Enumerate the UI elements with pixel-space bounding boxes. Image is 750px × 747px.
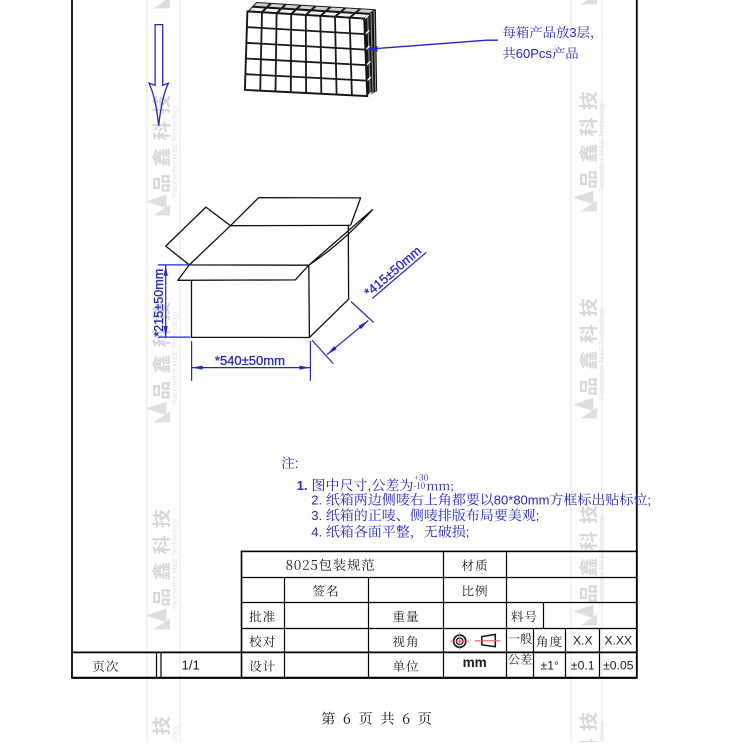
svg-text:Pacesetter M&E Technology: Pacesetter M&E Technology (170, 725, 179, 742)
svg-text:X.X: X.X (573, 634, 593, 648)
svg-text:4.: 4. (311, 525, 325, 540)
svg-text:1.: 1. (297, 478, 308, 493)
svg-text:1/1: 1/1 (182, 658, 200, 673)
svg-text:Pacesetter M&E Technology: Pacesetter M&E Technology (597, 100, 606, 193)
svg-text:Pacesetter M&E Technology: Pacesetter M&E Technology (170, 104, 179, 197)
svg-text:*215±50mm: *215±50mm (152, 269, 166, 337)
svg-text:60Pcs: 60Pcs (516, 46, 553, 61)
svg-text:;: ; (466, 525, 470, 540)
svg-text:X.XX: X.XX (604, 634, 632, 648)
svg-text:±0.05: ±0.05 (603, 658, 634, 672)
svg-text:Pacesetter M&E Technology: Pacesetter M&E Technology (170, 311, 179, 404)
svg-text:Pacesetter M&E Technology: Pacesetter M&E Technology (597, 514, 606, 607)
svg-text:Pacesetter M&E Technology: Pacesetter M&E Technology (597, 721, 606, 742)
svg-text:Pacesetter M&E Technology: Pacesetter M&E Technology (170, 518, 179, 611)
svg-text:2.: 2. (311, 493, 325, 508)
svg-text:±1°: ±1° (541, 658, 559, 672)
svg-text:,: , (368, 477, 372, 493)
svg-text:;: ; (647, 493, 651, 508)
svg-text:3.: 3. (311, 508, 325, 523)
svg-text:;: ; (536, 508, 540, 523)
svg-text::: : (295, 456, 299, 471)
svg-text:mm: mm (463, 655, 487, 670)
svg-text:80*80mm: 80*80mm (494, 493, 550, 508)
svg-text:±0.1: ±0.1 (571, 658, 595, 672)
svg-text:*540±50mm: *540±50mm (215, 353, 285, 368)
svg-text:Pacesetter M&E Technology: Pacesetter M&E Technology (597, 307, 606, 400)
svg-text:3: 3 (569, 25, 576, 40)
